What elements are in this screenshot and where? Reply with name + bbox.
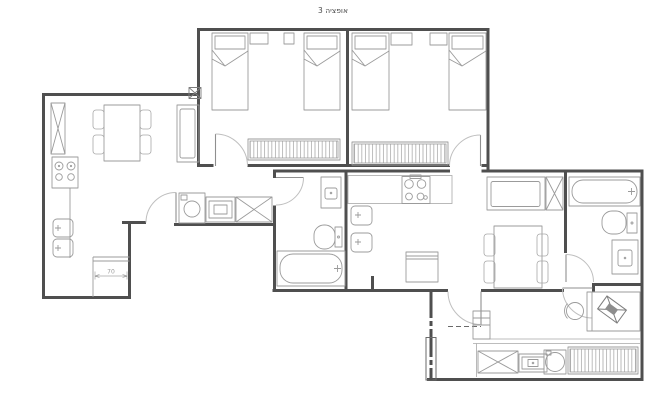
cabinet: [236, 197, 272, 222]
bedroom-1: [212, 33, 340, 160]
entry-door: [448, 292, 481, 325]
counter: [70, 188, 130, 297]
single-bed: [212, 33, 248, 110]
wardrobe: [352, 142, 448, 165]
wardrobe: [248, 139, 340, 160]
nightstand: [284, 33, 294, 44]
sofa: [487, 177, 545, 210]
vanity-sink: [321, 177, 341, 208]
bedroom-2-door: [450, 135, 481, 166]
sink: [351, 233, 372, 252]
wardrobe: [568, 347, 638, 374]
kitchen-2: [348, 175, 452, 282]
single-bed: [449, 33, 486, 110]
dimension-label: 70: [107, 269, 115, 276]
nightstand: [391, 33, 412, 45]
single-bed: [304, 33, 340, 110]
bathroom-2: [569, 177, 640, 274]
kitchen-corridor-door: [146, 193, 176, 223]
dryer: [206, 197, 235, 222]
vanity-sink: [612, 240, 638, 274]
sofa: [177, 105, 199, 162]
counter: [348, 176, 452, 204]
stove: [402, 175, 430, 204]
washing-machine: [179, 193, 205, 223]
toilet: [602, 211, 637, 234]
laundry-corridor: [179, 193, 272, 223]
toilet: [314, 225, 342, 249]
walls: [42, 28, 644, 381]
cabinet: [546, 177, 563, 210]
desk-chair-folded: [598, 296, 627, 323]
nightstand: [250, 33, 268, 44]
chairs: [93, 110, 151, 154]
counter-block: [406, 252, 438, 282]
bathroom-1-door: [276, 178, 304, 206]
bathtub: [277, 251, 345, 286]
cabinet: [478, 351, 518, 373]
sink: [351, 206, 372, 225]
dining-table: [494, 226, 542, 288]
floor-plan-canvas: אופציה 3: [0, 0, 668, 401]
tall-cabinet: [51, 103, 65, 154]
nightstand: [430, 33, 447, 45]
bedroom-3: [473, 292, 640, 377]
dimension-70: 70: [95, 269, 127, 280]
kitchen-dining-left: [51, 88, 201, 298]
single-bed: [352, 33, 389, 110]
bedroom-1-door: [216, 134, 248, 166]
bathroom-1: [277, 177, 345, 286]
drawer-unit: [519, 354, 547, 372]
dining-table: [104, 105, 140, 161]
bathtub: [569, 177, 640, 206]
plan-title: אופציה 3: [318, 6, 348, 15]
bedroom-2: [352, 33, 486, 165]
dining-living-right: [484, 177, 563, 288]
floor-plan-drawing: אופציה 3: [0, 0, 668, 401]
stove: [52, 157, 78, 188]
bathroom-2-door: [566, 255, 594, 283]
